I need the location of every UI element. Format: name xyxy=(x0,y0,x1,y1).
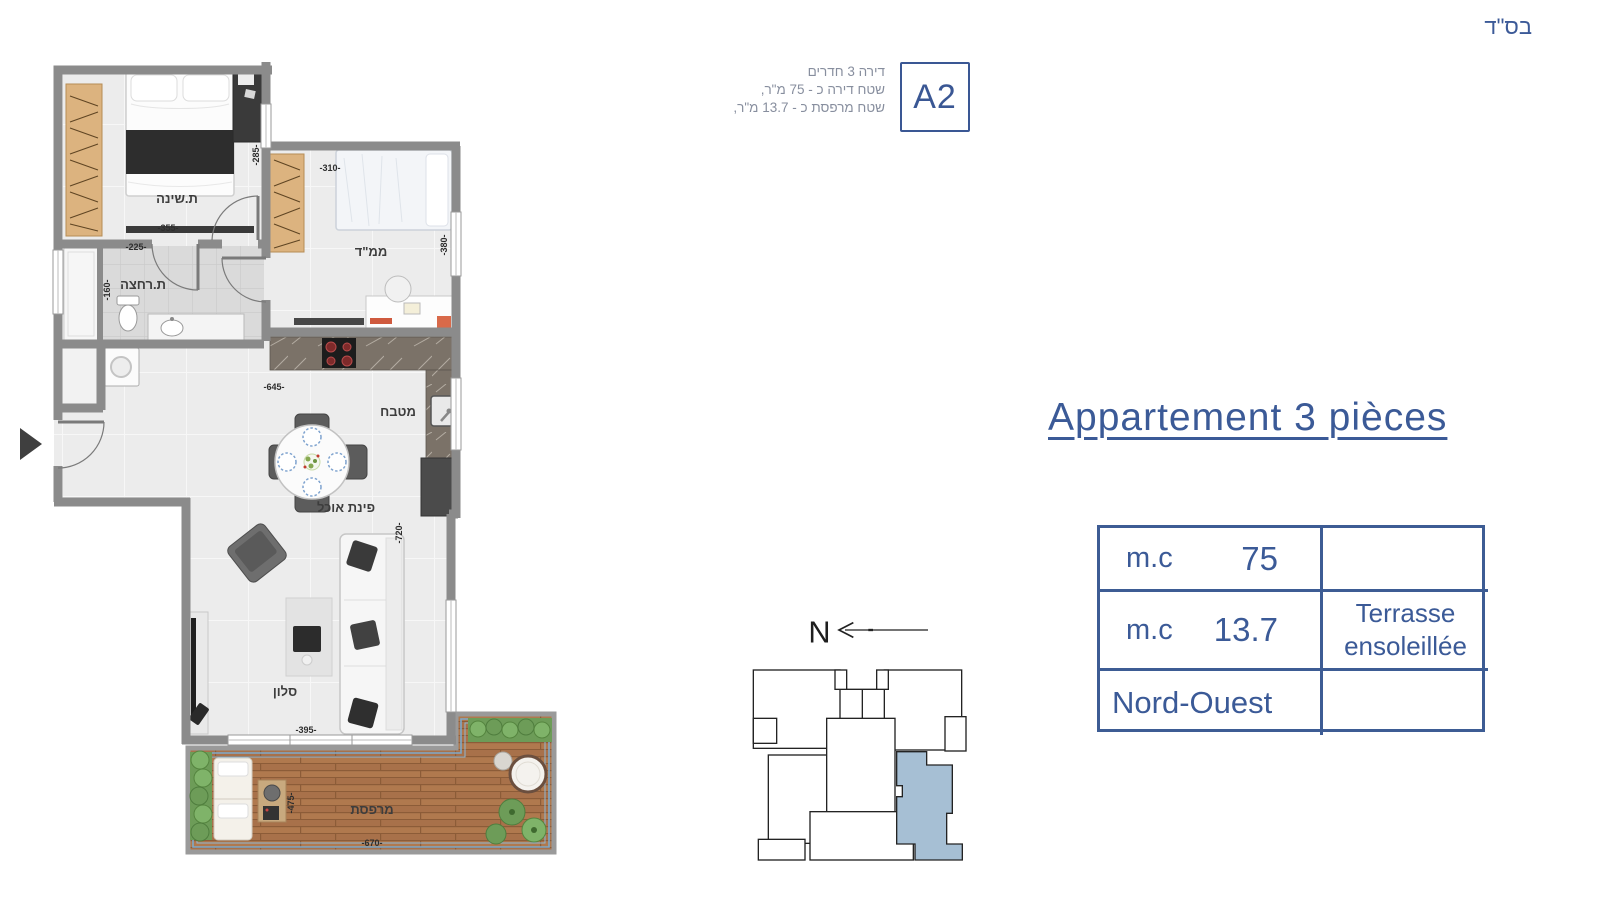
desk-chair xyxy=(385,276,411,302)
north-label: N xyxy=(808,616,830,650)
unit-specs: דירה 3 חדרים שטח דירה כ - 75 מ"ר, שטח מר… xyxy=(640,63,885,117)
wardrobe xyxy=(270,154,304,252)
unit-spec-line: שטח דירה כ - 75 מ"ר, xyxy=(640,81,885,99)
label-terrace: מרפסת xyxy=(350,802,393,817)
label-dining: פינת אוכל xyxy=(317,500,375,515)
label-kitchen: מטבח xyxy=(380,404,416,419)
storage-niche xyxy=(62,348,99,406)
area-unit: m.c xyxy=(1126,614,1173,647)
unit-spec-line: דירה 3 חדרים xyxy=(640,63,885,81)
hedge-left xyxy=(190,751,212,841)
dim-670: -670- xyxy=(361,838,382,848)
table-cell-terrace-note: Terrasse ensoleillée xyxy=(1323,592,1488,671)
bed-blanket xyxy=(126,130,234,174)
unit-code-badge: A2 xyxy=(900,62,970,132)
dim-720: -720- xyxy=(394,522,404,543)
dim-645: -645- xyxy=(263,382,284,392)
label-bedroom: ת.שינה xyxy=(156,191,198,206)
apartment-title: Appartement 3 pièces xyxy=(1048,396,1508,440)
shower-area xyxy=(64,248,98,340)
building-location-diagram: N xyxy=(725,600,975,880)
page: ת.שינה ממ"ד ת.רחצה מטבח פינת אוכל סלון מ… xyxy=(0,0,1600,900)
area-value: 75 xyxy=(1241,540,1278,578)
dim-310: -310- xyxy=(319,163,340,173)
table-cell-empty xyxy=(1323,671,1488,735)
table-cell-orientation: Nord-Ouest xyxy=(1100,671,1323,735)
dim-395: -395- xyxy=(295,725,316,735)
terrace-note-line: ensoleillée xyxy=(1344,630,1467,663)
terrace-chair xyxy=(494,752,512,770)
table-cell-area: m.c 75 xyxy=(1100,528,1323,592)
dim-475: -475- xyxy=(286,792,296,813)
grill xyxy=(264,785,280,801)
terrace-note-line: Terrasse xyxy=(1356,597,1456,630)
counter-top xyxy=(270,337,460,370)
sink-basin xyxy=(161,320,183,336)
floor-plan: ת.שינה ממ"ד ת.רחצה מטבח פינת אוכל סלון מ… xyxy=(0,0,600,900)
dim-355: -355- xyxy=(157,223,178,233)
label-mamad: ממ"ד xyxy=(355,244,388,259)
dim-380: -380- xyxy=(439,234,449,255)
hedge-top xyxy=(468,718,552,742)
bedroom-rug xyxy=(126,226,254,233)
unit-spec-line: שטח מרפסת כ - 13.7 מ"ר, xyxy=(640,99,885,117)
round-table xyxy=(510,756,546,792)
highlighted-unit xyxy=(897,752,963,860)
label-living: סלון xyxy=(273,684,297,699)
mamad-rug xyxy=(294,318,364,325)
label-bathroom: ת.רחצה xyxy=(120,277,166,292)
tv xyxy=(191,618,196,720)
north-arrow: N xyxy=(808,616,928,650)
spec-table: m.c 75 m.c 13.7 Terrasse ensoleillée Nor… xyxy=(1097,525,1485,732)
area-unit: m.c xyxy=(1126,542,1173,575)
dim-285: -285- xyxy=(251,144,261,165)
coffee-table xyxy=(293,626,321,652)
bsd-mark: בס"ד xyxy=(1462,14,1532,40)
dim-160: -160- xyxy=(102,279,112,300)
toilet xyxy=(119,305,137,331)
area-value: 13.7 xyxy=(1214,611,1278,649)
dim-225: -225- xyxy=(125,242,146,252)
entrance-arrow-icon xyxy=(20,428,42,460)
table-cell-terrace-area: m.c 13.7 xyxy=(1100,592,1323,671)
toilet-tank xyxy=(117,296,139,305)
table-cell-empty xyxy=(1323,528,1488,592)
